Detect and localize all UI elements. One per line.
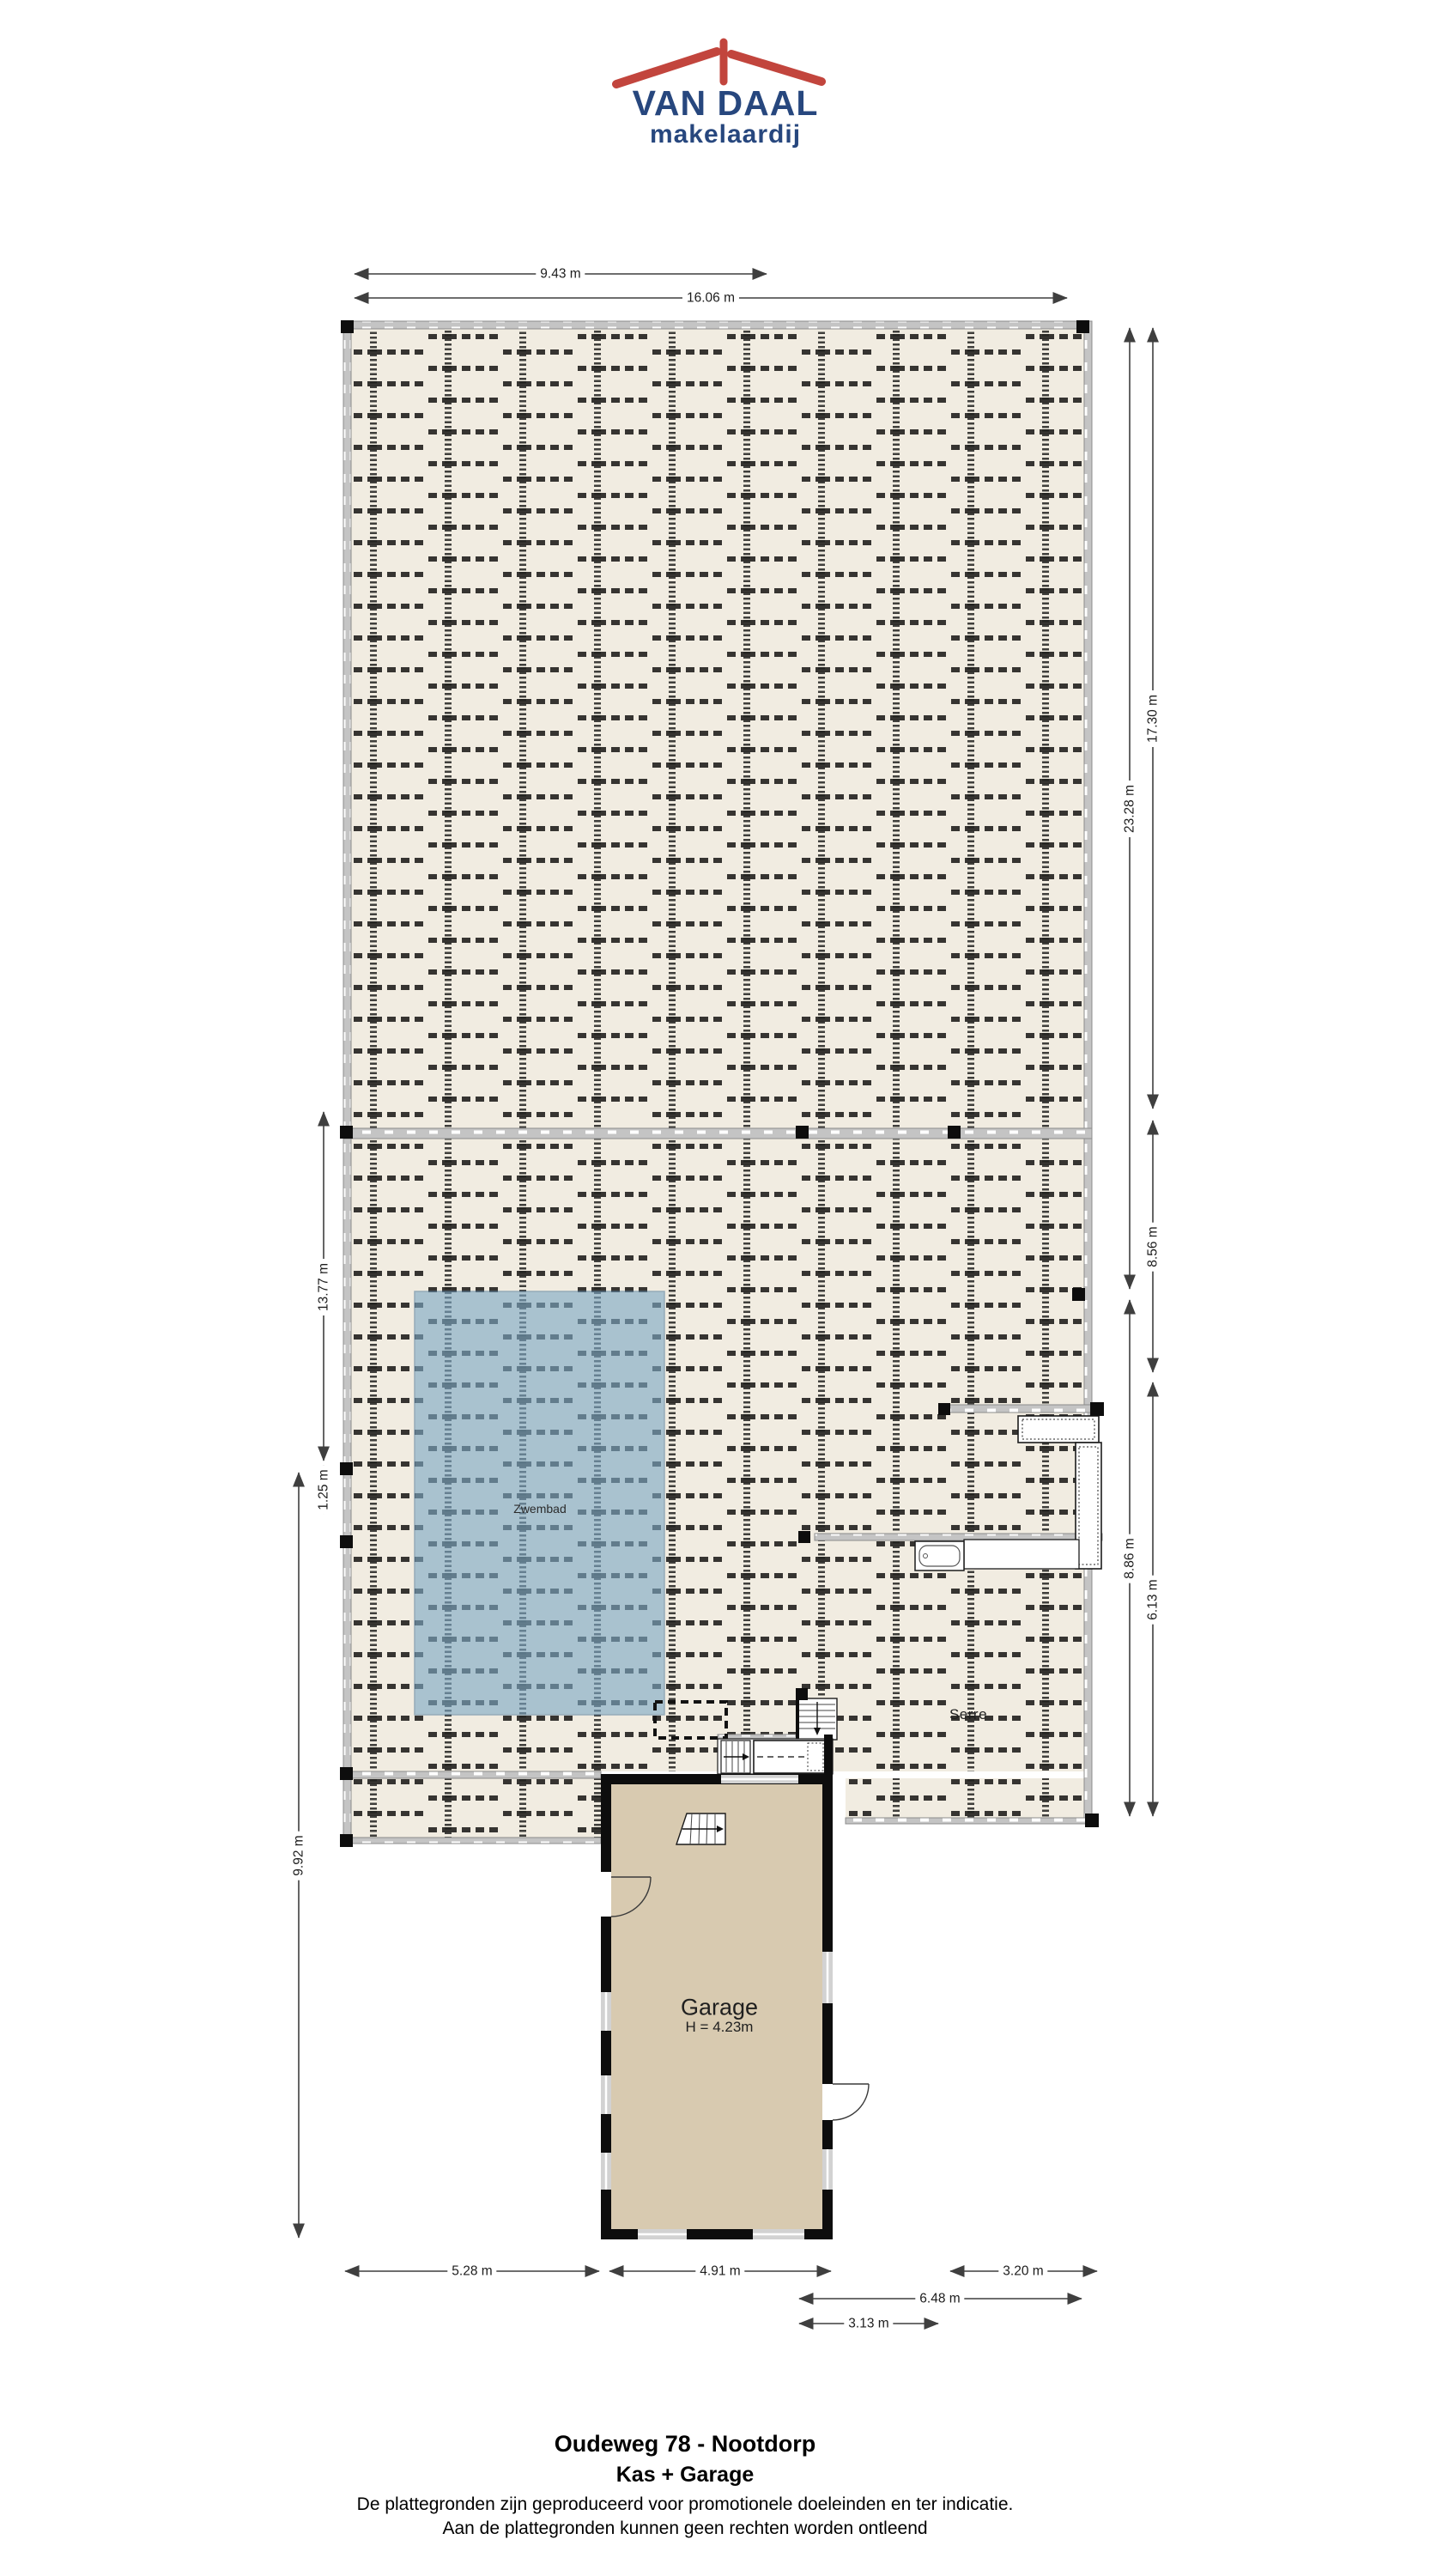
dim-right-856: 8.56 m bbox=[1145, 1222, 1160, 1271]
dim-bottom-491: 4.91 m bbox=[695, 2263, 744, 2278]
dim-left-1377: 13.77 m bbox=[316, 1259, 330, 1315]
stairs-icon-corridor bbox=[721, 1741, 750, 1773]
pool-label: Zwembad bbox=[513, 1502, 566, 1516]
stairs-icon-middle bbox=[797, 1698, 837, 1740]
footer-address: Oudeweg 78 - Nootdorp bbox=[555, 2431, 816, 2458]
footer-subtitle: Kas + Garage bbox=[616, 2463, 755, 2488]
footer-disclaimer-1: De plattegronden zijn geproduceerd voor … bbox=[357, 2494, 1014, 2515]
storage-room bbox=[754, 1741, 826, 1773]
garage-height-label: H = 4.23m bbox=[686, 2019, 754, 2036]
floorplan-page: VAN DAAL makelaardij bbox=[0, 0, 1449, 2576]
serre-label: Serre bbox=[949, 1706, 987, 1723]
dim-right-613: 6.13 m bbox=[1145, 1575, 1160, 1624]
footer-disclaimer-2: Aan de plattegronden kunnen geen rechten… bbox=[442, 2518, 927, 2539]
dim-right-1730: 17.30 m bbox=[1145, 690, 1160, 747]
dim-bottom-528: 5.28 m bbox=[447, 2263, 496, 2278]
dim-right-886: 8.86 m bbox=[1122, 1534, 1137, 1583]
garage-windows-left bbox=[601, 1992, 611, 2190]
dim-bottom-320: 3.20 m bbox=[998, 2263, 1047, 2278]
dim-bottom-313: 3.13 m bbox=[844, 2316, 893, 2330]
bathtub-icon bbox=[915, 1541, 964, 1571]
door-arc-right bbox=[833, 2084, 869, 2120]
floorplan-svg bbox=[0, 0, 1449, 2576]
dim-right-2328: 23.28 m bbox=[1122, 781, 1137, 837]
dim-top-width-2: 16.06 m bbox=[682, 290, 739, 305]
dim-left-125: 1.25 m bbox=[316, 1465, 330, 1514]
dim-left-992: 9.92 m bbox=[291, 1831, 306, 1880]
dim-top-width-1: 9.43 m bbox=[536, 266, 585, 281]
dim-bottom-648: 6.48 m bbox=[915, 2291, 964, 2306]
garage-label: Garage bbox=[681, 1995, 758, 2021]
